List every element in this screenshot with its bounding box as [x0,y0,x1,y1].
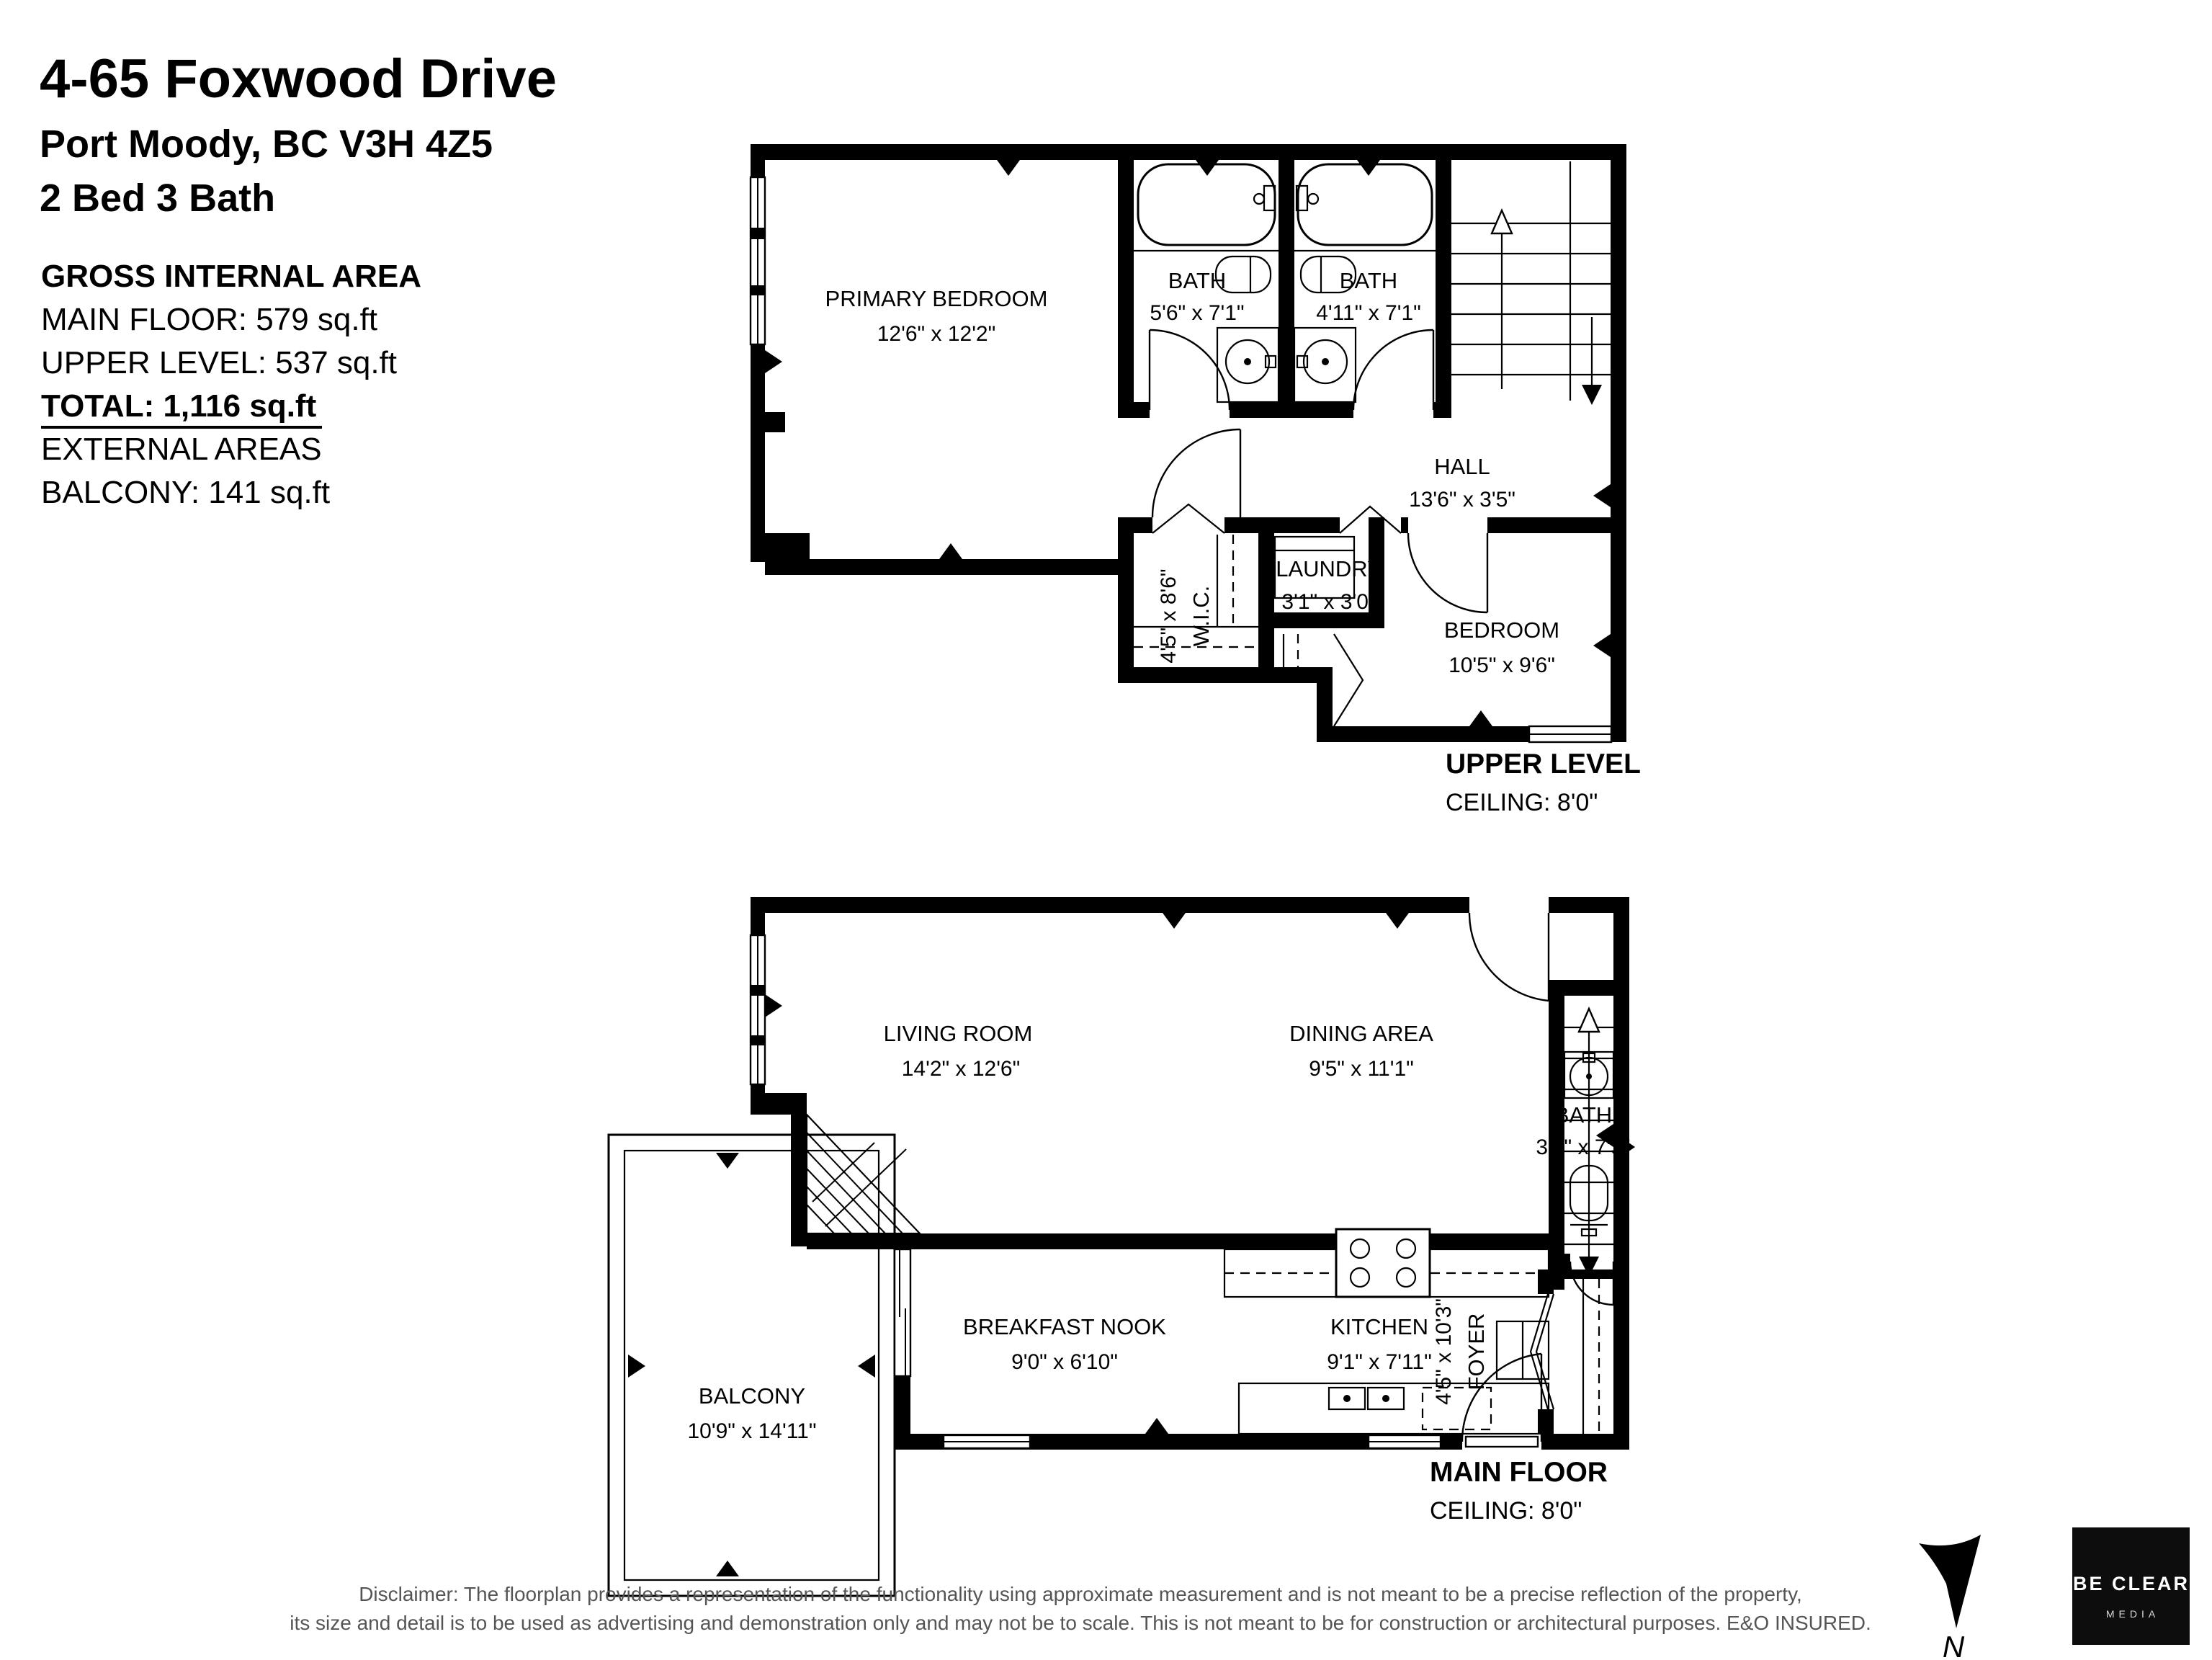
main-floor-plan: LIVING ROOM 14'2" x 12'6" DINING AREA 9'… [609,897,1635,1596]
main-floor-room-labels: LIVING ROOM 14'2" x 12'6" DINING AREA 9'… [688,1021,1631,1443]
room-label-living-room: LIVING ROOM [884,1021,1033,1046]
room-label-dining-area: DINING AREA [1289,1021,1433,1046]
room-label-bath-left: BATH [1168,268,1226,293]
room-dims-dining-area: 9'5" x 11'1" [1309,1057,1414,1081]
title-block: 4-65 Foxwood Drive Port Moody, BC V3H 4Z… [40,48,557,220]
room-dims-wic: 4'5" x 8'6" [1157,568,1181,663]
room-dims-balcony: 10'9" x 14'11" [688,1419,817,1443]
logo-name: BE CLEAR [2073,1573,2190,1594]
room-dims-primary-bedroom: 12'6" x 12'2" [877,322,996,346]
logo-tagline: MEDIA [2106,1608,2159,1620]
room-dims-bath-left: 5'6" x 7'1" [1150,301,1244,325]
address-line1: 4-65 Foxwood Drive [40,48,557,110]
disclaimer-line2: its size and detail is to be used as adv… [290,1612,1871,1634]
room-dims-bedroom: 10'5" x 9'6" [1448,653,1555,677]
room-label-breakfast-nook: BREAKFAST NOOK [963,1314,1166,1339]
upper-level-area: UPPER LEVEL: 537 sq.ft [41,345,397,380]
room-dims-laundry: 3'1" x 3'0" [1281,590,1376,614]
area-stats-block: GROSS INTERNAL AREA MAIN FLOOR: 579 sq.f… [41,259,421,510]
balcony-area: BALCONY: 141 sq.ft [41,475,330,510]
room-dims-kitchen: 9'1" x 7'11" [1327,1350,1432,1374]
room-dims-foyer: 4'5" x 10'3" [1432,1298,1456,1405]
external-areas-heading: EXTERNAL AREAS [41,432,322,467]
room-label-wic: W.I.C. [1188,586,1214,646]
upper-level-label: UPPER LEVEL [1446,749,1641,780]
room-label-laundry: LAUNDRY [1276,556,1382,581]
main-floor-caption: MAIN FLOOR CEILING: 8'0" [1430,1457,1608,1525]
disclaimer-line1: Disclaimer: The floorplan provides a rep… [359,1583,1802,1605]
beclear-media-logo: BE CLEAR MEDIA [2072,1527,2190,1645]
total-area: TOTAL: 1,116 sq.ft [41,388,317,424]
room-label-balcony: BALCONY [699,1383,805,1409]
room-dims-living-room: 14'2" x 12'6" [902,1057,1021,1081]
room-label-bath-right: BATH [1340,268,1397,293]
address-line2: Port Moody, BC V3H 4Z5 [40,122,493,166]
room-label-hall: HALL [1434,454,1490,479]
upper-level-ceiling: CEILING: 8'0" [1446,789,1598,816]
room-label-bedroom: BEDROOM [1444,617,1559,643]
north-label: N [1943,1630,1965,1660]
bathtub-icon [1138,164,1275,245]
floorplan-page: 4-65 Foxwood Drive Port Moody, BC V3H 4Z… [0,0,2212,1660]
beds-baths: 2 Bed 3 Bath [40,177,275,220]
floorplan-drawing: 4-65 Foxwood Drive Port Moody, BC V3H 4Z… [0,0,2212,1660]
upper-level-plan: PRIMARY BEDROOM 12'6" x 12'2" BATH 5'6" … [751,144,1641,816]
bathtub-icon [1298,164,1432,245]
room-dims-hall: 13'6" x 3'5" [1409,488,1515,512]
main-floor-label: MAIN FLOOR [1430,1457,1608,1488]
balcony-outline [609,1135,895,1596]
gross-area-heading: GROSS INTERNAL AREA [41,259,421,294]
footer: Disclaimer: The floorplan provides a rep… [290,1527,2190,1660]
main-floor-area: MAIN FLOOR: 579 sq.ft [41,302,377,337]
upper-stairs [1451,161,1611,405]
main-floor-ceiling: CEILING: 8'0" [1430,1497,1582,1525]
north-arrow-icon: N [1919,1535,1981,1660]
stove-icon [1336,1229,1430,1297]
angled-wall-hatch [807,1115,920,1233]
room-label-main-bath: BATH [1554,1102,1612,1128]
upper-level-caption: UPPER LEVEL CEILING: 8'0" [1446,749,1641,816]
room-dims-main-bath: 3'2" x 7'3" [1536,1135,1630,1159]
room-label-foyer: FOYER [1464,1313,1489,1391]
room-dims-bath-right: 4'11" x 7'1" [1316,301,1421,325]
room-dims-breakfast-nook: 9'0" x 6'10" [1011,1350,1118,1374]
room-label-kitchen: KITCHEN [1330,1314,1428,1339]
room-label-primary-bedroom: PRIMARY BEDROOM [825,286,1048,311]
